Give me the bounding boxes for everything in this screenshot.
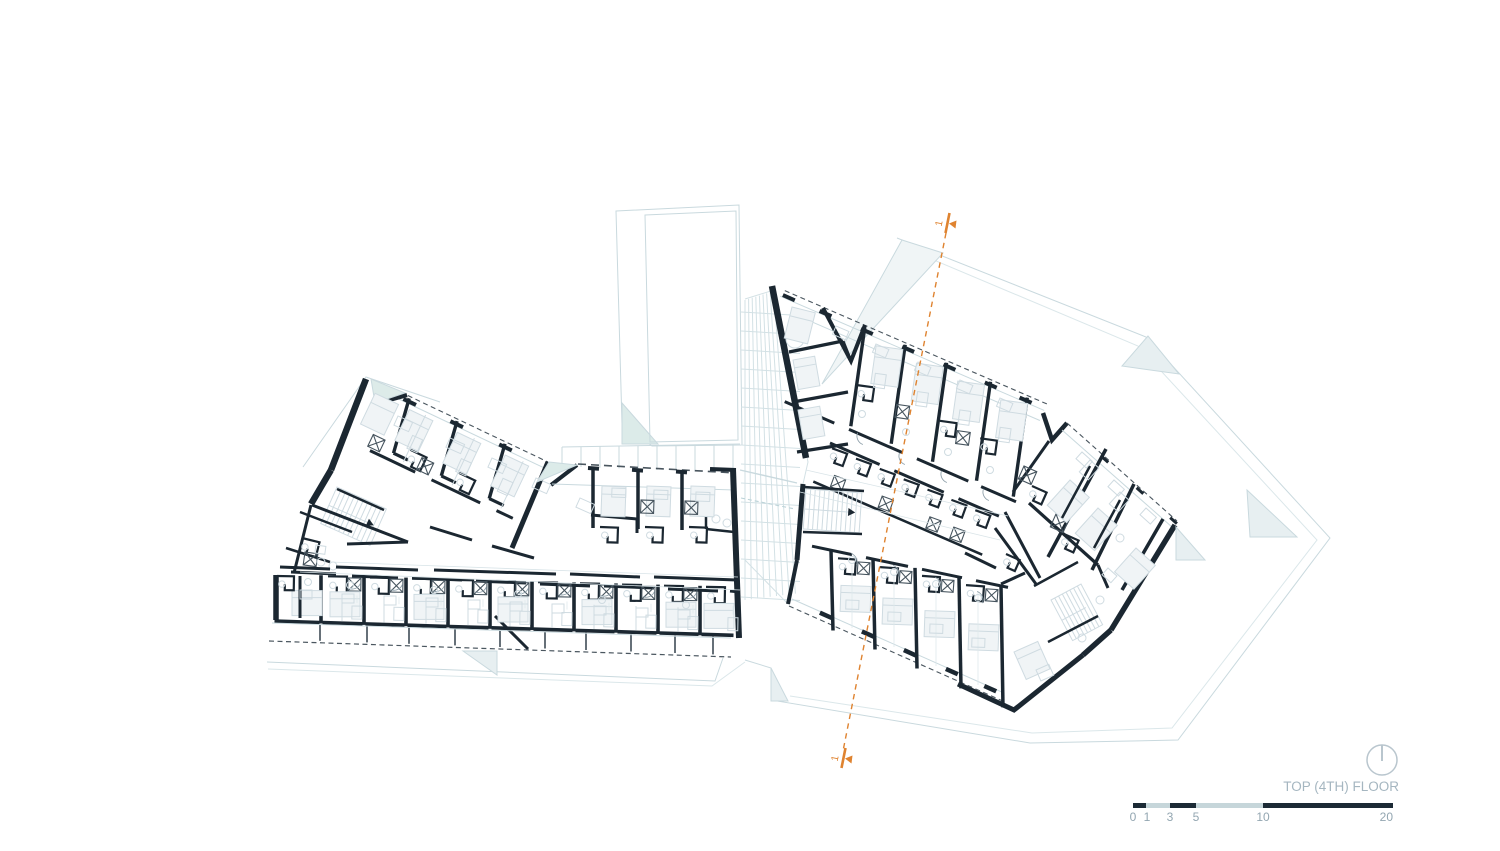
svg-text:TOP (4TH) FLOOR: TOP (4TH) FLOOR [1283,779,1399,794]
svg-text:0: 0 [1130,810,1137,824]
svg-text:20: 20 [1380,810,1394,824]
svg-text:5: 5 [1193,810,1200,824]
svg-text:1: 1 [1144,810,1151,824]
svg-text:3: 3 [1167,810,1174,824]
svg-text:10: 10 [1256,810,1270,824]
